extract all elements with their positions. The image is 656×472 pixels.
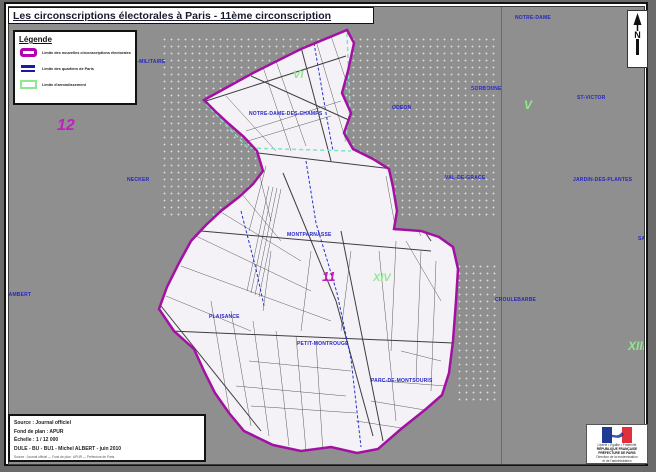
quartier-label: NOTRE-DAME-DES-CHAMPS <box>249 111 322 117</box>
district-polygon <box>159 30 458 453</box>
arrondissement-numeral-vi: VI <box>293 69 303 81</box>
circonscription-number-12: 12 <box>57 117 75 135</box>
circonscription-number-11: 11 <box>322 269 336 284</box>
quartier-label: JARDIN-DES-PLANTES <box>573 177 632 183</box>
quartier-label: CROULEBARBE <box>495 297 536 303</box>
legend-title: Légende <box>19 35 131 44</box>
map-title-bar: Les circonscriptions électorales à Paris… <box>8 7 374 24</box>
quartier-label: NOTRE-DAME <box>515 15 551 21</box>
legend-item-quartier: Limite des quartiers de Paris <box>19 63 131 74</box>
quartier-label: PLAISANCE <box>209 314 240 320</box>
quartier-label: SALPETRIERE <box>638 236 645 242</box>
quartier-label: ST-VICTOR <box>577 95 605 101</box>
quartier-label: ODEON <box>392 105 411 111</box>
green-boundary-swatch <box>19 80 37 89</box>
magenta-boundary-swatch <box>19 48 37 57</box>
quartier-label: PARC-DE-MONTSOURIS <box>371 378 433 384</box>
map-document: NOTRE-DAME-DES-CHAMPS MONTPARNASSE PLAIS… <box>0 0 656 472</box>
direction-text-2: et de l'administration <box>602 459 631 463</box>
agency-logo-box: Liberté • Égalité • Fraternité RÉPUBLIQU… <box>586 424 648 464</box>
source-line: Source : Journal officiel <box>14 419 200 428</box>
legend-box: Légende Limite des nouvelles circonscrip… <box>13 30 137 105</box>
quartier-label: NECKER <box>127 177 149 183</box>
legend-item-label: Limite d'arrondissement <box>42 83 86 87</box>
legend-item-arrondissement: Limite d'arrondissement <box>19 79 131 90</box>
quartier-label: PETIT-MONTROUGE <box>297 341 349 347</box>
french-republic-flag-icon <box>602 427 632 443</box>
quartier-label: ST-LAMBERT <box>8 292 31 298</box>
legend-item-label: Limite des nouvelles circonscriptions él… <box>42 51 131 55</box>
fine-print-line: Source : Journal officiel — Fond de plan… <box>14 455 200 459</box>
map-title: Les circonscriptions électorales à Paris… <box>13 10 331 22</box>
blue-dash-swatch <box>19 64 37 73</box>
source-box: Source : Journal officiel Fond de plan :… <box>8 414 206 462</box>
scale-line: Échelle : 1 / 12 000 <box>14 436 200 445</box>
arrondissement-numeral-xiv: XIV <box>373 272 391 284</box>
quartier-label: VAL-DE-GRACE <box>445 175 485 181</box>
legend-item-label: Limite des quartiers de Paris <box>42 67 94 71</box>
quartier-label: SORBONNE <box>471 86 502 92</box>
north-arrow-icon <box>628 11 647 31</box>
arrondissement-numeral-xiii: XIII <box>628 339 645 353</box>
north-arrow-tail <box>628 39 647 61</box>
basemap-line: Fond de plan : APUR <box>14 428 200 437</box>
legend-item-circonscription: Limite des nouvelles circonscriptions él… <box>19 47 131 58</box>
north-label: N <box>634 31 641 39</box>
north-arrow-box: N <box>627 10 648 68</box>
author-line: DULE - BU - BU1 - Michel ALBERT - juin 2… <box>14 445 200 454</box>
quartier-label: MONTPARNASSE <box>287 232 332 238</box>
arrondissement-numeral-v: V <box>524 98 532 112</box>
